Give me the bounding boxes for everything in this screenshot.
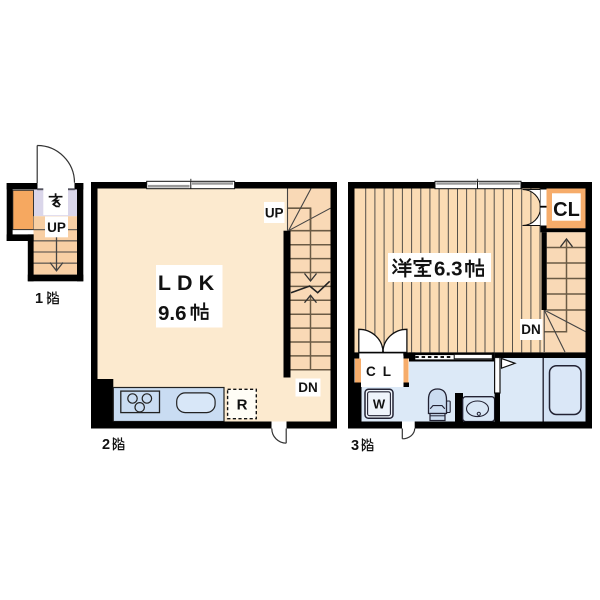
svg-text:6.3: 6.3: [434, 258, 463, 281]
svg-text:CL: CL: [553, 199, 580, 221]
svg-text:9.6: 9.6: [158, 302, 187, 325]
svg-text:DN: DN: [298, 380, 318, 395]
svg-text:3: 3: [351, 438, 359, 454]
svg-text:LDK: LDK: [158, 271, 220, 295]
svg-text:UP: UP: [265, 206, 284, 221]
svg-text:UP: UP: [47, 220, 66, 235]
svg-text:W: W: [373, 397, 386, 412]
svg-text:DN: DN: [521, 322, 541, 337]
svg-text:1: 1: [35, 291, 43, 307]
svg-text:CL: CL: [366, 364, 398, 379]
svg-text:2: 2: [102, 437, 110, 453]
svg-text:R: R: [237, 397, 248, 414]
